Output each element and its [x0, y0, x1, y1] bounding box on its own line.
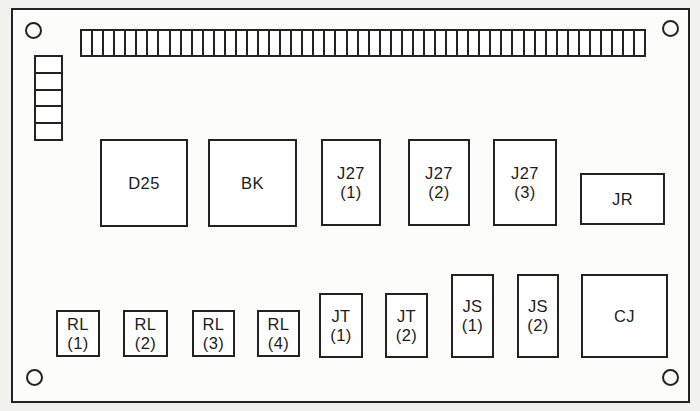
terminal-cell [513, 31, 524, 55]
scanned-diagram-page: D25BKJ27(1)J27(2)J27(3)JRRL(1)RL(2)RL(3)… [0, 0, 700, 411]
terminal-cell [403, 31, 414, 55]
component-label: (2) [527, 316, 548, 335]
terminal-cell [392, 31, 403, 55]
component-label: J27 [425, 164, 453, 183]
component-box-rl-3: RL(3) [192, 310, 235, 357]
terminal-cell [281, 31, 292, 55]
component-box-j27-1: J27(1) [321, 139, 381, 226]
mounting-hole-bottom-left [26, 369, 43, 386]
terminal-cell [469, 31, 480, 55]
component-label: (1) [67, 334, 88, 353]
component-label: (3) [203, 334, 224, 353]
terminal-cell [447, 31, 458, 55]
component-label: JS [462, 297, 482, 316]
terminal-cell [502, 31, 513, 55]
connector-cell [36, 57, 61, 74]
component-label: J27 [337, 164, 365, 183]
component-label: JT [331, 307, 350, 326]
mounting-hole-top-left [25, 22, 42, 39]
terminal-cell [171, 31, 182, 55]
top-terminal-strip [80, 29, 646, 57]
component-label: J27 [511, 164, 539, 183]
connector-cell [36, 91, 61, 108]
terminal-cell [635, 31, 644, 55]
terminal-cell [602, 31, 613, 55]
component-box-cj: CJ [581, 274, 668, 358]
component-box-d25: D25 [100, 139, 188, 227]
component-label: BK [241, 174, 264, 193]
terminal-cell [436, 31, 447, 55]
terminal-cell [226, 31, 237, 55]
terminal-cell [148, 31, 159, 55]
terminal-cell [359, 31, 370, 55]
terminal-cell [314, 31, 325, 55]
terminal-cell [270, 31, 281, 55]
terminal-cell [325, 31, 336, 55]
terminal-cell [425, 31, 436, 55]
terminal-cell [336, 31, 347, 55]
mounting-hole-top-right [662, 20, 679, 37]
terminal-cell [215, 31, 226, 55]
terminal-cell [591, 31, 602, 55]
component-label: (2) [428, 183, 449, 202]
component-label: RL [268, 315, 290, 334]
component-label: (3) [514, 183, 535, 202]
component-label: JT [397, 307, 416, 326]
terminal-cell [370, 31, 381, 55]
component-box-js-1: JS(1) [451, 274, 494, 358]
terminal-cell [558, 31, 569, 55]
terminal-cell [381, 31, 392, 55]
terminal-cell [126, 31, 137, 55]
terminal-cell [624, 31, 635, 55]
terminal-cell [547, 31, 558, 55]
component-label: (2) [135, 334, 156, 353]
terminal-cell [204, 31, 215, 55]
terminal-cell [303, 31, 314, 55]
component-label: CJ [614, 307, 635, 326]
component-box-bk: BK [208, 139, 297, 227]
terminal-cell [193, 31, 204, 55]
terminal-cell [259, 31, 270, 55]
terminal-cell [525, 31, 536, 55]
component-box-j27-2: J27(2) [408, 139, 470, 226]
component-label: (1) [340, 183, 361, 202]
component-label: (4) [268, 334, 289, 353]
component-box-jt-1: JT(1) [319, 293, 363, 358]
terminal-cell [93, 31, 104, 55]
mounting-hole-bottom-right [662, 369, 679, 386]
component-box-rl-4: RL(4) [257, 310, 300, 357]
component-label: (2) [396, 326, 417, 345]
component-box-rl-1: RL(1) [56, 310, 100, 357]
terminal-cell [137, 31, 148, 55]
component-box-j27-3: J27(3) [493, 139, 557, 226]
component-label: JS [528, 297, 548, 316]
connector-cell [36, 107, 61, 124]
terminal-cell [237, 31, 248, 55]
terminal-cell [414, 31, 425, 55]
terminal-cell [348, 31, 359, 55]
component-box-jt-2: JT(2) [385, 293, 428, 358]
component-box-jr: JR [580, 173, 665, 225]
connector-cell [36, 124, 61, 139]
component-label: (1) [330, 326, 351, 345]
terminal-cell [580, 31, 591, 55]
terminal-cell [536, 31, 547, 55]
component-box-js-2: JS(2) [517, 274, 559, 358]
component-label: D25 [128, 174, 159, 193]
terminal-cell [182, 31, 193, 55]
component-label: RL [135, 315, 157, 334]
terminal-cell [480, 31, 491, 55]
terminal-cell [569, 31, 580, 55]
component-label: RL [67, 315, 89, 334]
component-box-rl-2: RL(2) [123, 310, 168, 357]
terminal-cell [613, 31, 624, 55]
component-label: (1) [462, 316, 483, 335]
left-connector-stack [34, 55, 63, 141]
component-label: RL [203, 315, 225, 334]
terminal-cell [115, 31, 126, 55]
terminal-cell [458, 31, 469, 55]
component-label: JR [612, 190, 633, 209]
terminal-cell [159, 31, 170, 55]
terminal-cell [491, 31, 502, 55]
terminal-cell [82, 31, 93, 55]
terminal-cell [104, 31, 115, 55]
terminal-cell [292, 31, 303, 55]
terminal-cell [248, 31, 259, 55]
connector-cell [36, 74, 61, 91]
